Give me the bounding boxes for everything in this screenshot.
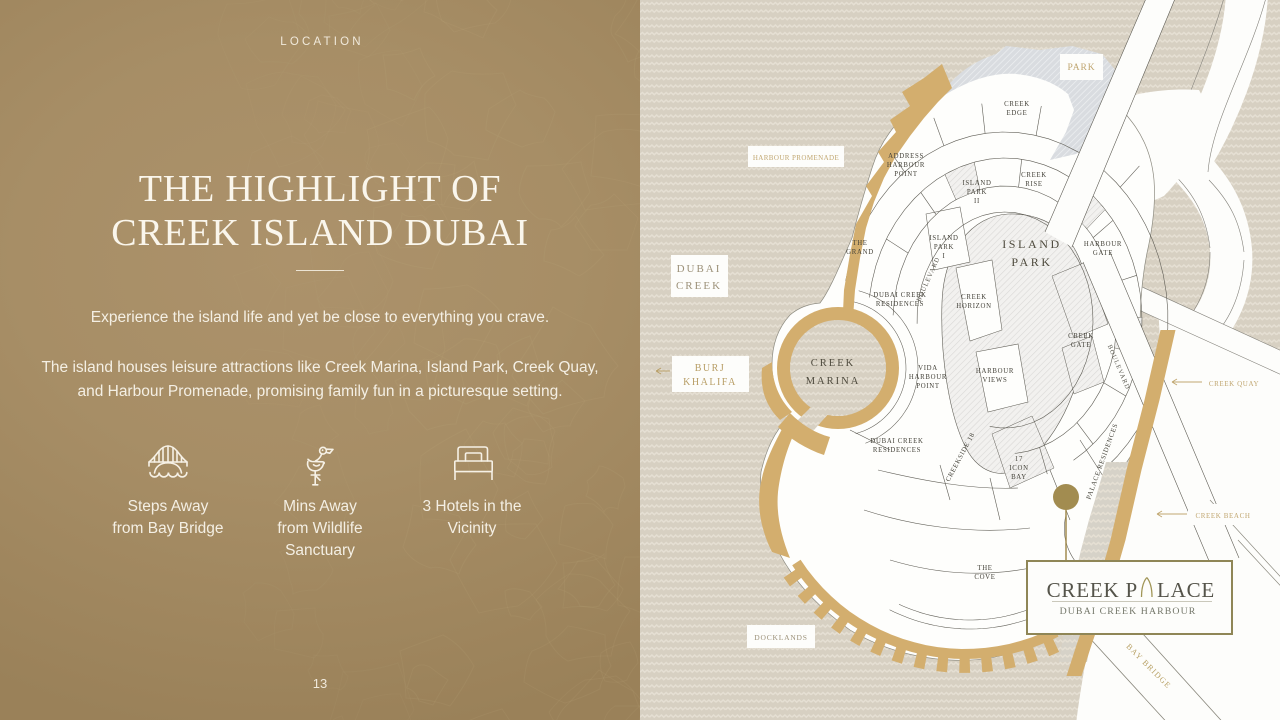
svg-text:PARK: PARK [1011, 255, 1052, 269]
svg-text:VIDA: VIDA [918, 365, 938, 372]
svg-text:GATE: GATE [1093, 250, 1113, 257]
svg-text:GATE: GATE [1071, 342, 1091, 349]
svg-text:HARBOUR: HARBOUR [1084, 241, 1122, 248]
svg-text:PARK: PARK [934, 244, 954, 251]
svg-text:RISE: RISE [1025, 181, 1043, 188]
svg-text:CREEK BEACH: CREEK BEACH [1195, 512, 1250, 520]
svg-text:BURJ: BURJ [695, 363, 725, 374]
svg-text:DUBAI CREEK HARBOUR: DUBAI CREEK HARBOUR [1060, 606, 1197, 617]
svg-text:THE: THE [977, 565, 992, 572]
svg-text:ISLAND: ISLAND [1002, 237, 1062, 251]
svg-text:GRAND: GRAND [846, 249, 874, 256]
svg-text:ISLAND: ISLAND [962, 180, 991, 187]
svg-text:17: 17 [1015, 456, 1023, 463]
svg-text:COVE: COVE [974, 574, 995, 581]
svg-text:HARBOUR PROMENADE: HARBOUR PROMENADE [753, 154, 839, 162]
svg-text:DUBAI: DUBAI [677, 263, 722, 275]
svg-text:ISLAND: ISLAND [929, 235, 958, 242]
svg-text:CREEK: CREEK [961, 294, 987, 301]
svg-text:BAY: BAY [1011, 474, 1027, 481]
svg-text:PARK: PARK [1067, 63, 1095, 73]
svg-text:I: I [943, 253, 946, 260]
svg-text:MARINA: MARINA [806, 376, 861, 387]
svg-text:EDGE: EDGE [1007, 110, 1028, 117]
svg-text:DOCKLANDS: DOCKLANDS [754, 633, 807, 642]
svg-text:LACE: LACE [1157, 578, 1215, 602]
svg-text:CREEK QUAY: CREEK QUAY [1209, 380, 1259, 388]
svg-text:RESIDENCES: RESIDENCES [876, 301, 924, 308]
svg-text:CREEK: CREEK [1004, 101, 1030, 108]
svg-text:RESIDENCES: RESIDENCES [873, 447, 921, 454]
svg-text:POINT: POINT [894, 171, 918, 178]
svg-text:CREEK P: CREEK P [1047, 578, 1138, 602]
svg-text:THE: THE [852, 240, 867, 247]
svg-text:HARBOUR: HARBOUR [887, 162, 925, 169]
svg-text:ADDRESS: ADDRESS [888, 153, 924, 160]
svg-text:DUBAI CREEK: DUBAI CREEK [870, 438, 923, 445]
svg-text:II: II [974, 198, 980, 205]
svg-text:KHALIFA: KHALIFA [683, 377, 737, 388]
svg-text:CREEK: CREEK [1068, 333, 1094, 340]
svg-text:POINT: POINT [916, 383, 940, 390]
svg-text:CREEK: CREEK [1021, 172, 1047, 179]
svg-text:HARBOUR: HARBOUR [909, 374, 947, 381]
svg-text:HARBOUR: HARBOUR [976, 368, 1014, 375]
svg-text:CREEK: CREEK [676, 280, 722, 292]
svg-text:PARK: PARK [967, 189, 987, 196]
svg-text:ICON: ICON [1009, 465, 1028, 472]
svg-text:HORIZON: HORIZON [956, 303, 991, 310]
svg-text:VIEWS: VIEWS [982, 377, 1007, 384]
svg-text:CREEK: CREEK [811, 358, 855, 369]
